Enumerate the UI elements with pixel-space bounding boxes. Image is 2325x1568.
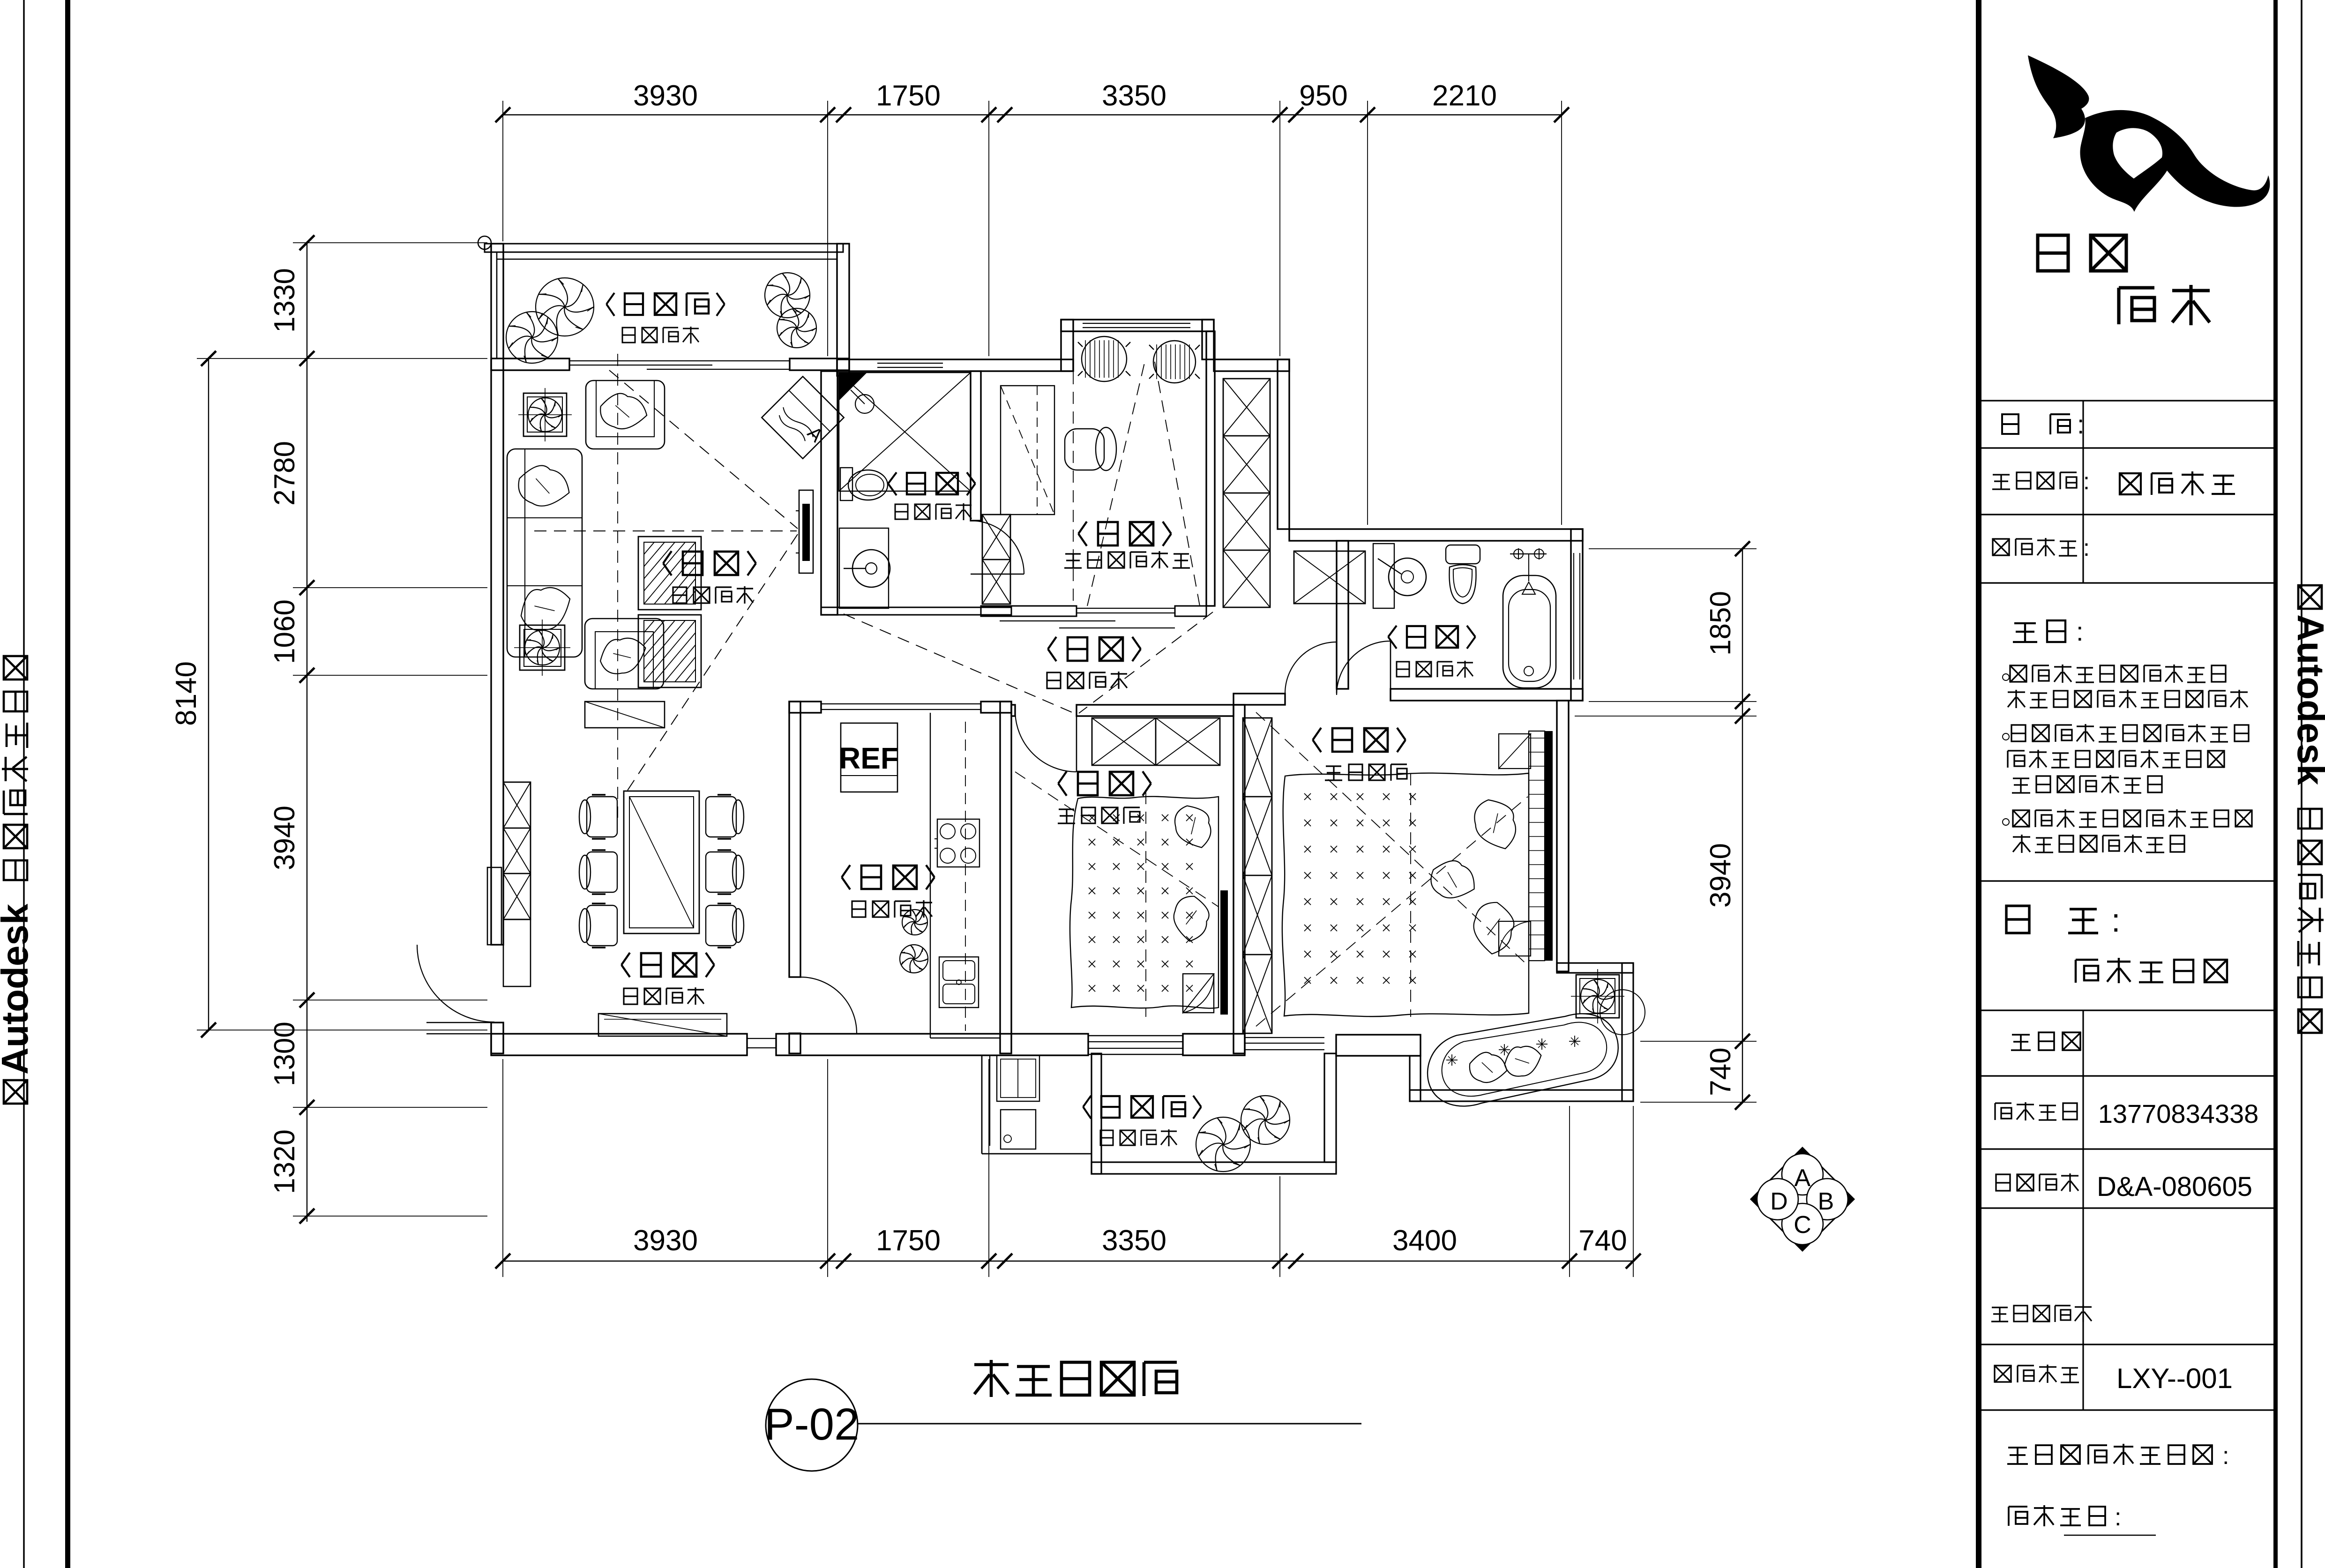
- svg-text:A: A: [1794, 1165, 1811, 1192]
- svg-text:1850: 1850: [1705, 591, 1737, 656]
- svg-text:950: 950: [1299, 80, 1347, 112]
- svg-text:13770834338: 13770834338: [2098, 1099, 2259, 1128]
- svg-text:1300: 1300: [269, 1022, 301, 1086]
- svg-text:1060: 1060: [269, 599, 301, 664]
- svg-text::: :: [2115, 1504, 2121, 1531]
- svg-text:3940: 3940: [1705, 843, 1737, 908]
- svg-text:3940: 3940: [269, 806, 301, 870]
- svg-text:P-02: P-02: [764, 1399, 860, 1449]
- svg-text:3400: 3400: [1392, 1225, 1457, 1257]
- svg-text:8140: 8140: [170, 661, 202, 726]
- svg-text:1750: 1750: [876, 1225, 941, 1257]
- svg-text:2780: 2780: [269, 441, 301, 506]
- svg-text:Autodesk: Autodesk: [2290, 614, 2325, 785]
- svg-text:3930: 3930: [633, 1225, 698, 1257]
- svg-text::: :: [2076, 617, 2084, 646]
- svg-text:1750: 1750: [876, 80, 941, 112]
- svg-text:C: C: [1794, 1211, 1811, 1239]
- svg-text:3930: 3930: [633, 80, 698, 112]
- svg-text::: :: [2077, 410, 2085, 439]
- svg-text:B: B: [1818, 1188, 1834, 1215]
- svg-text:740: 740: [1578, 1225, 1627, 1257]
- svg-text:1320: 1320: [269, 1129, 301, 1194]
- svg-text:D&A-080605: D&A-080605: [2097, 1172, 2252, 1202]
- svg-text::: :: [2111, 902, 2120, 939]
- svg-text:LXY--001: LXY--001: [2116, 1363, 2233, 1394]
- svg-text:3350: 3350: [1102, 80, 1166, 112]
- svg-text:D: D: [1770, 1188, 1788, 1215]
- svg-text::: :: [2083, 535, 2090, 561]
- svg-text::: :: [2222, 1442, 2229, 1470]
- svg-text:1330: 1330: [269, 268, 301, 333]
- svg-text:3350: 3350: [1102, 1225, 1166, 1257]
- svg-text:REF: REF: [839, 741, 899, 775]
- svg-text:Autodesk: Autodesk: [0, 903, 36, 1075]
- svg-text:740: 740: [1705, 1047, 1737, 1096]
- svg-text:2210: 2210: [1432, 80, 1497, 112]
- svg-text::: :: [2083, 468, 2090, 494]
